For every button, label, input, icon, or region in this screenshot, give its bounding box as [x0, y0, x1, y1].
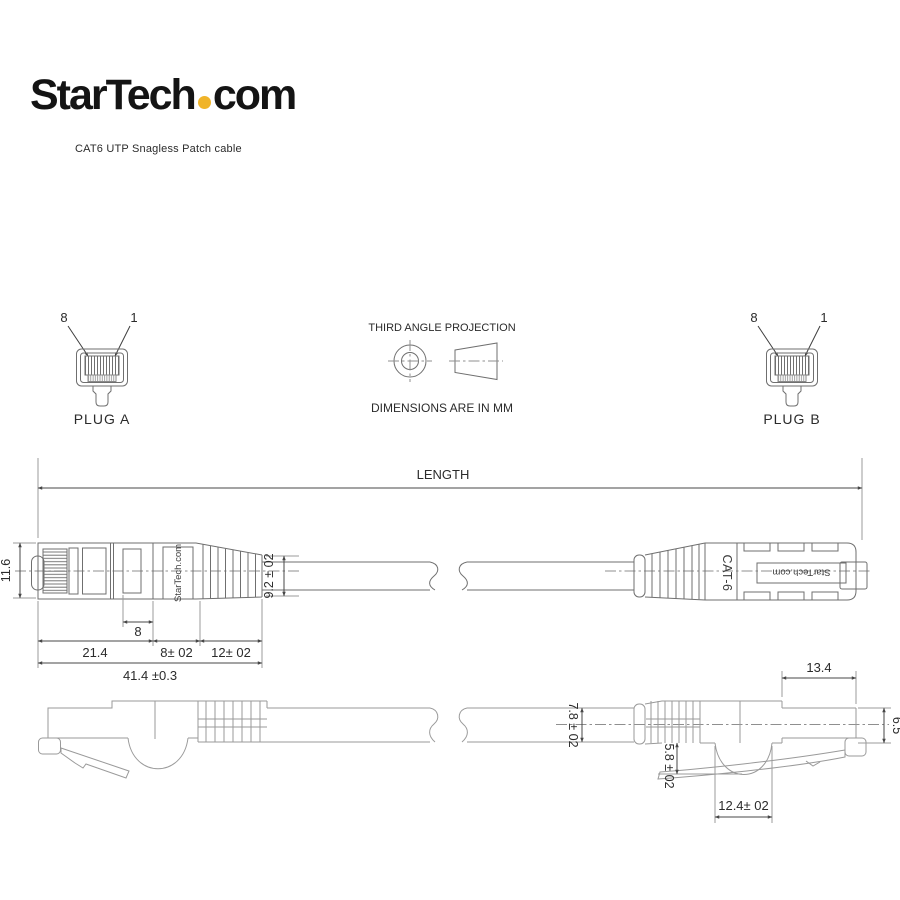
plug-b-pin8-label: 8	[750, 310, 757, 325]
brand-label-left: StarTech.com	[173, 544, 184, 602]
snagless-latch-right	[658, 750, 845, 779]
snagless-latch-left	[61, 748, 129, 778]
plug-b-cable-stem	[783, 386, 801, 406]
plug-b-label: PLUG B	[763, 411, 820, 427]
dim-12-02: 12± 02	[211, 645, 251, 660]
plug-b-pin8-leader	[758, 326, 778, 356]
dim-13-4: 13.4	[806, 660, 831, 675]
latch-base-tab-left	[39, 738, 61, 754]
technical-drawing: 8 1 PLUG A THIRD ANGLE PROJECTION DIMENS…	[0, 0, 900, 900]
front-len-extension	[782, 671, 856, 704]
projection-crosshair	[388, 340, 432, 382]
side-cable-break-left	[430, 708, 438, 742]
boot-tail-cap	[634, 555, 645, 597]
dim-8: 8	[134, 624, 141, 639]
plug-b-pin-contacts	[775, 356, 809, 375]
plug-contact-hatch	[43, 549, 67, 593]
plug-a-pin1-label: 1	[130, 310, 137, 325]
dim-9-2: 9.2 ± 02	[262, 553, 276, 598]
boot-scallop-left	[128, 738, 188, 769]
plug-a-front-view: 8 1 PLUG A	[60, 310, 137, 427]
cable-break-right	[459, 562, 467, 590]
length-dimension: LENGTH	[38, 458, 862, 540]
plug-b-pin1-label: 1	[820, 310, 827, 325]
plug-b-pin-window	[778, 375, 806, 382]
cable-break-left	[430, 562, 438, 590]
length-dim-label: LENGTH	[417, 467, 470, 482]
side-boot-ribs-right	[646, 701, 700, 743]
side-front-body-right	[772, 701, 856, 743]
third-angle-projection: THIRD ANGLE PROJECTION DIMENSIONS ARE IN…	[368, 322, 515, 415]
plug-a-label: PLUG A	[74, 411, 131, 427]
cable-top-left	[262, 562, 430, 590]
dim-5-8: 5.8 ± 02	[662, 743, 676, 788]
plug-b-front-view: 8 1 PLUG B	[750, 310, 827, 427]
dim-11-6: 11.6	[0, 559, 13, 582]
projection-title: THIRD ANGLE PROJECTION	[368, 322, 515, 334]
side-view-left-connector	[39, 701, 438, 778]
plug-a-cable-stem	[93, 386, 111, 406]
side-cable-break-right	[459, 708, 467, 742]
plug-body-divider	[111, 543, 114, 599]
plug-a-pin-contacts	[85, 356, 119, 375]
plug-a-pin8-label: 8	[60, 310, 67, 325]
dim-41-4: 41.4 ±0.3	[123, 668, 177, 683]
side-cable-right	[467, 708, 634, 742]
plug-a-pin1-leader	[115, 326, 130, 356]
dim-6-5: 6.5	[890, 717, 900, 734]
side-body-outline-left	[48, 701, 267, 742]
latch-base-tab-right	[845, 738, 866, 756]
dim-8-02: 8± 02	[160, 645, 192, 660]
plug-front-tab	[840, 562, 867, 589]
cable-top-right	[467, 562, 634, 590]
plug-a-pin-window	[88, 375, 116, 382]
brand-label-right-mirrored: StarTech.com	[772, 567, 830, 578]
side-cable-left	[267, 708, 430, 742]
top-view-right-connector: CAT-6 StarTech.com	[459, 543, 872, 600]
cat6-marking: CAT-6	[720, 555, 734, 592]
top-view-left-connector: StarTech.com	[15, 543, 438, 602]
boot-scallop-right	[715, 743, 772, 775]
plug-b-pin1-leader	[805, 326, 820, 356]
dim-12-4: 12.4± 02	[718, 798, 769, 813]
side-body-outline-right	[645, 701, 782, 744]
drawing-page: StarTechcom CAT6 UTP Snagless Patch cabl…	[0, 0, 900, 900]
side-boot-ribs-left	[198, 701, 267, 742]
plug-a-pin8-leader	[68, 326, 88, 356]
dim-7-8: 7.8 ± 02	[566, 702, 580, 747]
dim-21-4: 21.4	[82, 645, 107, 660]
units-note: DIMENSIONS ARE IN MM	[371, 401, 513, 415]
